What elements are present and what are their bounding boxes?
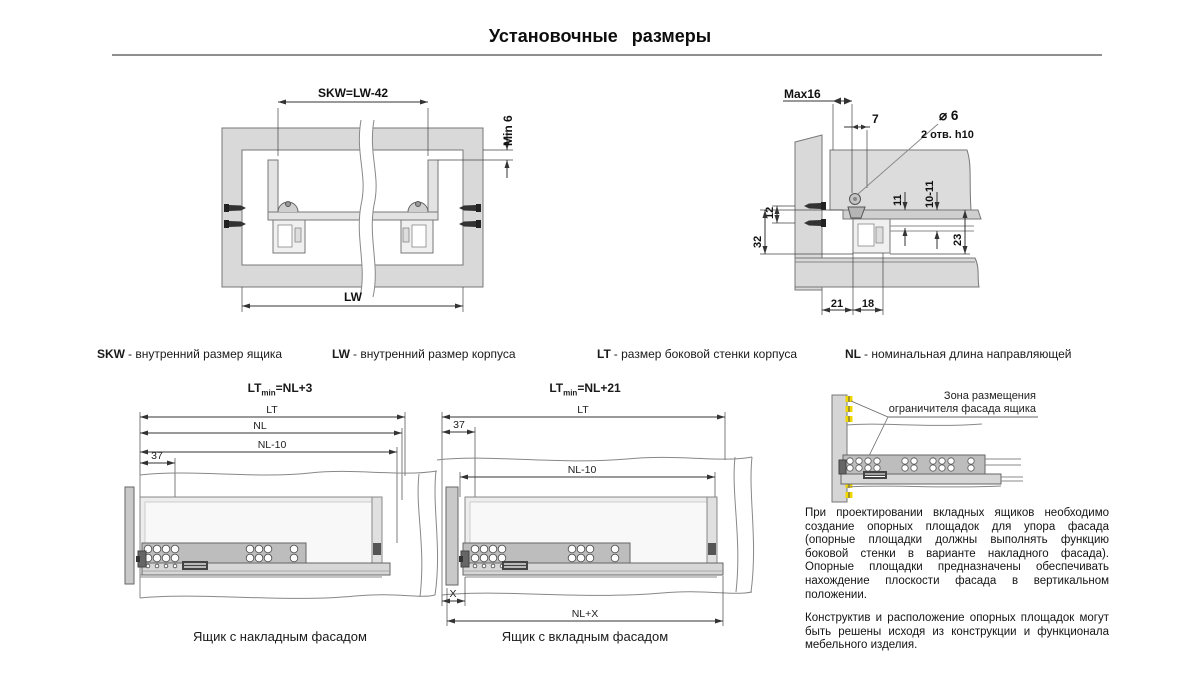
dim-label-nl10: NL-10 <box>258 439 287 451</box>
dim-label-nl: NL <box>253 420 267 432</box>
dim-label-32: 32 <box>752 236 764 248</box>
dim-label-37: 37 <box>151 450 163 462</box>
dim-label-nlx: NL+X <box>572 608 599 620</box>
dim-label-x: X <box>449 588 456 600</box>
dim-12: 12 <box>764 206 795 223</box>
dim-label-min6: Min 6 <box>501 115 515 146</box>
dim-label-lt: LT <box>266 404 278 416</box>
legend-nl: NL- номинальная длина направляющей <box>845 347 1071 361</box>
facade-overlay <box>125 487 134 584</box>
dim-label-7: 7 <box>872 112 879 126</box>
notes-block: При проектировании вкладных ящиков необх… <box>805 507 1109 663</box>
dim-label-11: 11 <box>892 194 904 206</box>
zone-label: Зона размещения ограничителя фасада ящик… <box>828 390 1036 416</box>
zone-label-line1: Зона размещения <box>828 390 1036 403</box>
dim-label-21: 21 <box>831 298 843 310</box>
dim-label-lw: LW <box>344 290 363 304</box>
legend-skw: SKW- внутренний размер ящика <box>97 347 282 361</box>
dim-label-23: 23 <box>952 234 964 246</box>
dim-label-diameter: ⌀ 6 <box>939 108 959 123</box>
top-right-drawing: Max16 7 ⌀ 6 2 отв. h10 12 32 <box>748 80 1093 320</box>
note-paragraph-2: Конструктив и расположение опорных площа… <box>805 612 1109 653</box>
zone-label-line2: ограничителя фасада ящика <box>828 403 1036 416</box>
cabinet-body <box>222 128 483 287</box>
caption-overlay: Ящик с накладным фасадом <box>110 629 450 644</box>
title-rule <box>112 54 1102 56</box>
cabinet-bottom-panel <box>795 258 979 287</box>
dim-label-holes: 2 отв. h10 <box>921 129 974 141</box>
dim-label-12: 12 <box>764 207 776 219</box>
bottom-middle-drawing: LT 37 NL-10 <box>430 380 770 635</box>
dim-label-skw: SKW=LW-42 <box>318 86 388 100</box>
facade-inset <box>446 487 458 585</box>
dim-label-nl10: NL-10 <box>568 464 597 476</box>
dim-lw: LW <box>242 287 463 312</box>
page-title: Установочные размеры <box>0 26 1200 47</box>
dim-label-lt: LT <box>577 404 589 416</box>
legend-lw: LW- внутренний размер корпуса <box>332 347 516 361</box>
dims-bottom: X NL+X <box>442 576 723 626</box>
catalog-page: Установочные размеры <box>0 0 1200 675</box>
drawer-and-slide <box>839 424 1023 487</box>
bottom-left-drawing: LT NL NL-10 37 <box>95 380 445 630</box>
dim-label-10-11: 10-11 <box>924 180 936 208</box>
top-left-drawing: SKW=LW-42 Min 6 LW <box>215 70 525 318</box>
dim-label-37: 37 <box>453 419 465 431</box>
dim-label-max16: Max16 <box>784 87 821 101</box>
caption-inset: Ящик с вкладным фасадом <box>430 629 740 644</box>
dim-label-18: 18 <box>862 298 874 310</box>
note-paragraph-1: При проектировании вкладных ящиков необх… <box>805 507 1109 602</box>
legend-lt: LT- размер боковой стенки корпуса <box>597 347 797 361</box>
